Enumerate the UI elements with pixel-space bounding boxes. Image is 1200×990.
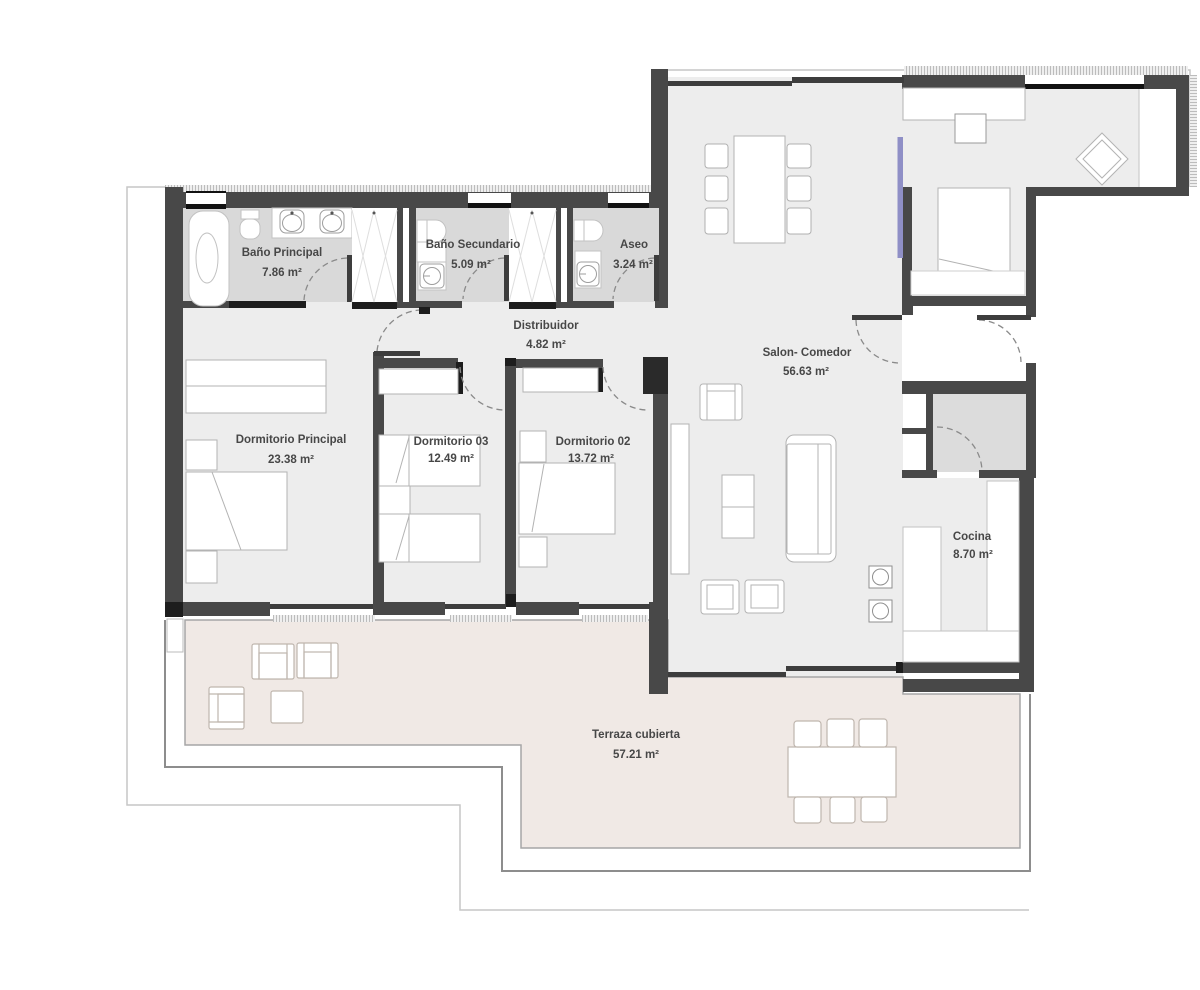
svg-text:Dormitorio 03: Dormitorio 03 [414,436,489,448]
svg-text:13.72 m²: 13.72 m² [568,453,614,465]
svg-text:Baño Principal: Baño Principal [242,247,323,259]
svg-text:Dormitorio 02: Dormitorio 02 [556,436,631,448]
svg-text:57.21 m²: 57.21 m² [613,749,659,761]
svg-text:12.49 m²: 12.49 m² [428,453,474,465]
svg-text:23.38 m²: 23.38 m² [268,454,314,466]
svg-text:Baño Secundario: Baño Secundario [426,239,521,251]
svg-text:Salon- Comedor: Salon- Comedor [763,347,852,359]
svg-text:5.09 m²: 5.09 m² [451,259,491,271]
svg-text:Aseo: Aseo [620,239,648,251]
svg-text:Terraza cubierta: Terraza cubierta [592,729,681,741]
svg-text:8.70 m²: 8.70 m² [953,549,993,561]
svg-text:56.63 m²: 56.63 m² [783,366,829,378]
svg-text:Distribuidor: Distribuidor [513,320,579,332]
svg-text:Dormitorio Principal: Dormitorio Principal [236,434,347,446]
svg-text:4.82 m²: 4.82 m² [526,339,566,351]
svg-text:Cocina: Cocina [953,531,992,543]
svg-text:7.86 m²: 7.86 m² [262,267,302,279]
svg-text:3.24 m²: 3.24 m² [613,259,653,271]
